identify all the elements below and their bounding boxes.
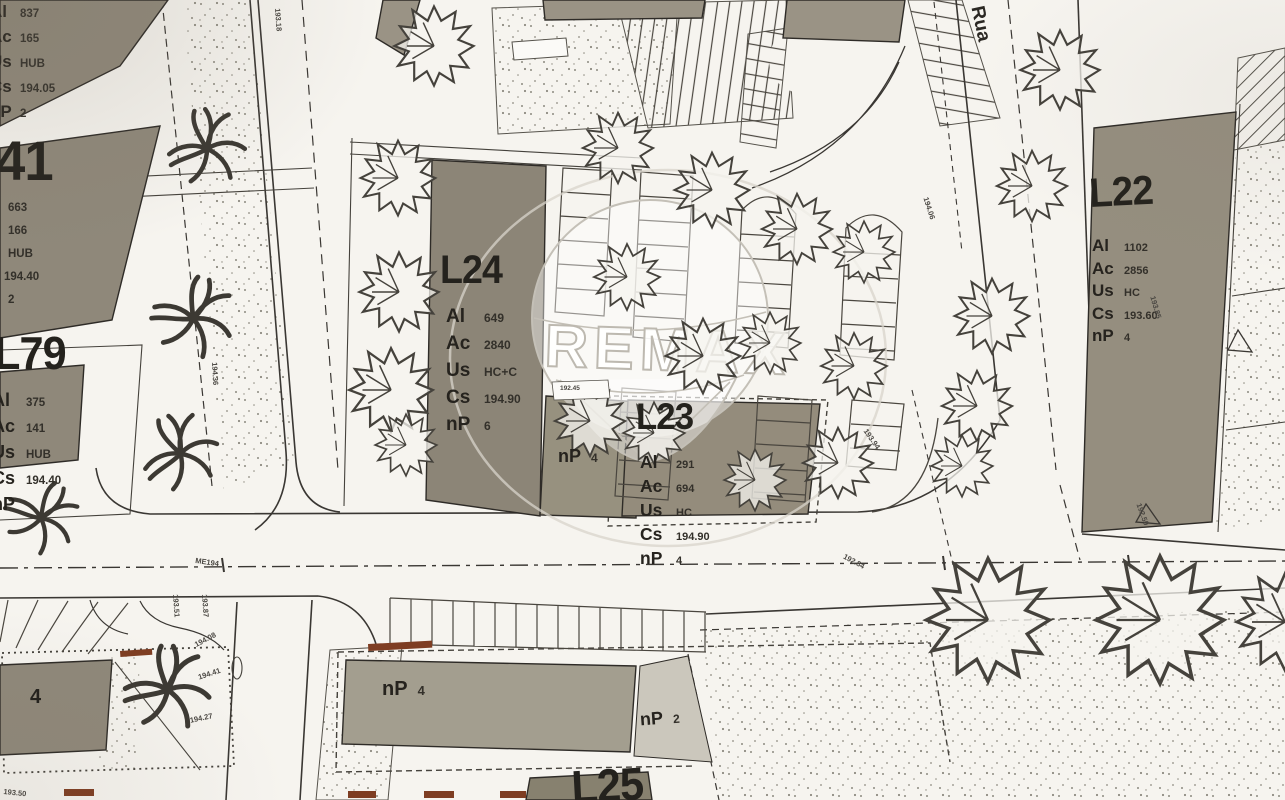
lot-41-attributes: 663 166 HUB 194.40 2 bbox=[8, 202, 39, 317]
attr-row: Ac694 bbox=[640, 476, 710, 500]
np-label-bottom-lot: nP2 bbox=[639, 707, 680, 731]
np-label-bottom-building: nP4 bbox=[382, 678, 425, 701]
np-label-l24-side: nP4 bbox=[558, 446, 598, 467]
attr-row: nP4 bbox=[640, 548, 710, 572]
attr-row: Cs194.90 bbox=[640, 524, 710, 548]
attr-row: Ac141 bbox=[0, 416, 61, 442]
lot-l24-attributes: Al649 Ac2840 UsHC+C Cs194.90 nP6 bbox=[446, 306, 521, 441]
attr-row: UsHUB bbox=[0, 442, 61, 468]
attr-row: Al837 bbox=[0, 2, 55, 27]
attr-row: Ac165 bbox=[0, 27, 55, 52]
attr-row: Ac2840 bbox=[446, 333, 521, 360]
lot-l23-attributes: Al291 Ac694 UsHC Cs194.90 nP4 bbox=[640, 452, 710, 572]
attr-row: UsHUB bbox=[0, 52, 55, 77]
survey-label: 193.87 bbox=[200, 594, 211, 618]
lot-id-l22: L22 bbox=[1088, 167, 1154, 217]
attr-row: nP6 bbox=[446, 414, 521, 441]
attr-row: nP4 bbox=[1092, 326, 1158, 349]
attr-row: nP2 bbox=[0, 102, 55, 127]
attr-row: Al649 bbox=[446, 306, 521, 333]
attr-row: Cs194.40 bbox=[0, 468, 61, 494]
attr-row: 663 bbox=[8, 202, 39, 225]
attr-row: Cs194.05 bbox=[0, 77, 55, 102]
survey-label: 194.36 bbox=[210, 362, 220, 385]
lot-id-41: 41 bbox=[0, 128, 53, 193]
lot-id-l25: L25 bbox=[570, 756, 644, 800]
attr-row: Al375 bbox=[0, 390, 61, 416]
lot-id-l24: L24 bbox=[440, 248, 502, 293]
plaza-bench bbox=[512, 38, 568, 60]
attr-row: 166 bbox=[8, 225, 39, 248]
attr-row: HUB bbox=[8, 248, 39, 271]
attr-row: Ac2856 bbox=[1092, 259, 1158, 282]
bl-building-label: 4 bbox=[30, 686, 41, 709]
attr-row: 2 bbox=[8, 294, 39, 317]
survey-label: 193.51 bbox=[171, 594, 182, 618]
attr-row: Cs193.60 bbox=[1092, 304, 1158, 327]
attr-row: nP bbox=[0, 494, 61, 520]
lot-l22-attributes: Al1102 Ac2856 UsHC Cs193.60 nP4 bbox=[1092, 236, 1158, 349]
elevation-plate-label: 192.45 bbox=[560, 385, 580, 392]
lot-id-l79: L79 bbox=[0, 326, 66, 380]
attr-row: Cs194.90 bbox=[446, 387, 521, 414]
attr-row: UsHC+C bbox=[446, 360, 521, 387]
survey-label: 193.18 bbox=[273, 8, 284, 32]
attr-row: Al1102 bbox=[1092, 236, 1158, 259]
attr-row: Al291 bbox=[640, 452, 710, 476]
attr-row: UsHC bbox=[640, 500, 710, 524]
lot-id-l23: L23 bbox=[636, 396, 693, 438]
site-plan-map: REMAX bbox=[0, 0, 1285, 800]
lot-l79-attributes: Al375 Ac141 UsHUB Cs194.40 nP bbox=[0, 390, 61, 520]
attr-row: UsHC bbox=[1092, 281, 1158, 304]
lot-topleft-attributes: Al837 Ac165 UsHUB Cs194.05 nP2 bbox=[0, 2, 55, 127]
attr-row: 194.40 bbox=[4, 271, 39, 294]
